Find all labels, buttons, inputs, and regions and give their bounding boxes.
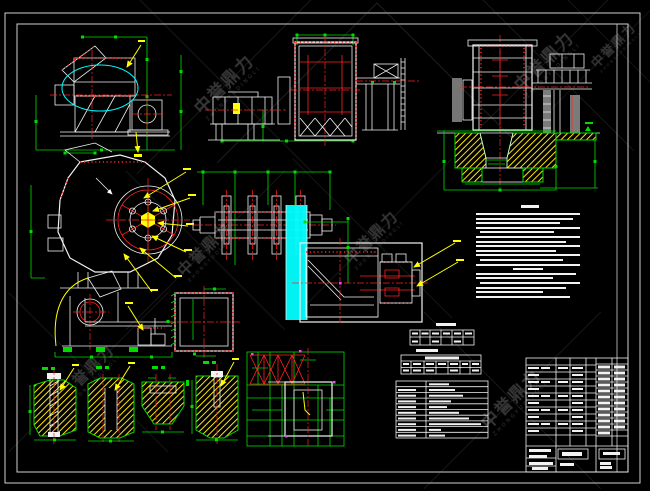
view-top-middle-elevation xyxy=(205,34,420,147)
small-table-1 xyxy=(410,323,474,352)
small-table-2 xyxy=(401,355,481,374)
cad-sheet: 中誉鼎力ZHONGYUDINGLI中誉鼎力ZHONGYUDINGLI中誉鼎力ZH… xyxy=(0,0,650,491)
view-center-plan xyxy=(292,217,464,325)
view-bottom-plan-detail xyxy=(247,348,344,448)
view-bolt-section-3 xyxy=(142,366,189,434)
notes-lines xyxy=(476,213,584,298)
view-rotor-section xyxy=(30,143,197,292)
watermark-diagonal xyxy=(217,3,537,163)
title-block xyxy=(526,358,628,472)
view-frame-top-view xyxy=(167,286,241,358)
view-bolt-section-1 xyxy=(29,364,80,444)
notes-title xyxy=(521,205,538,208)
view-rotor-shaft-assembly xyxy=(192,171,336,266)
view-top-right-elevation-foundation xyxy=(437,35,600,192)
notes-block xyxy=(476,205,584,300)
parameter-list-table xyxy=(396,381,488,438)
view-bottom-left-elevation xyxy=(55,271,172,359)
view-bolt-section-2 xyxy=(88,362,135,443)
view-bolt-section-4 xyxy=(191,358,240,444)
view-top-left-elevation xyxy=(35,36,183,158)
